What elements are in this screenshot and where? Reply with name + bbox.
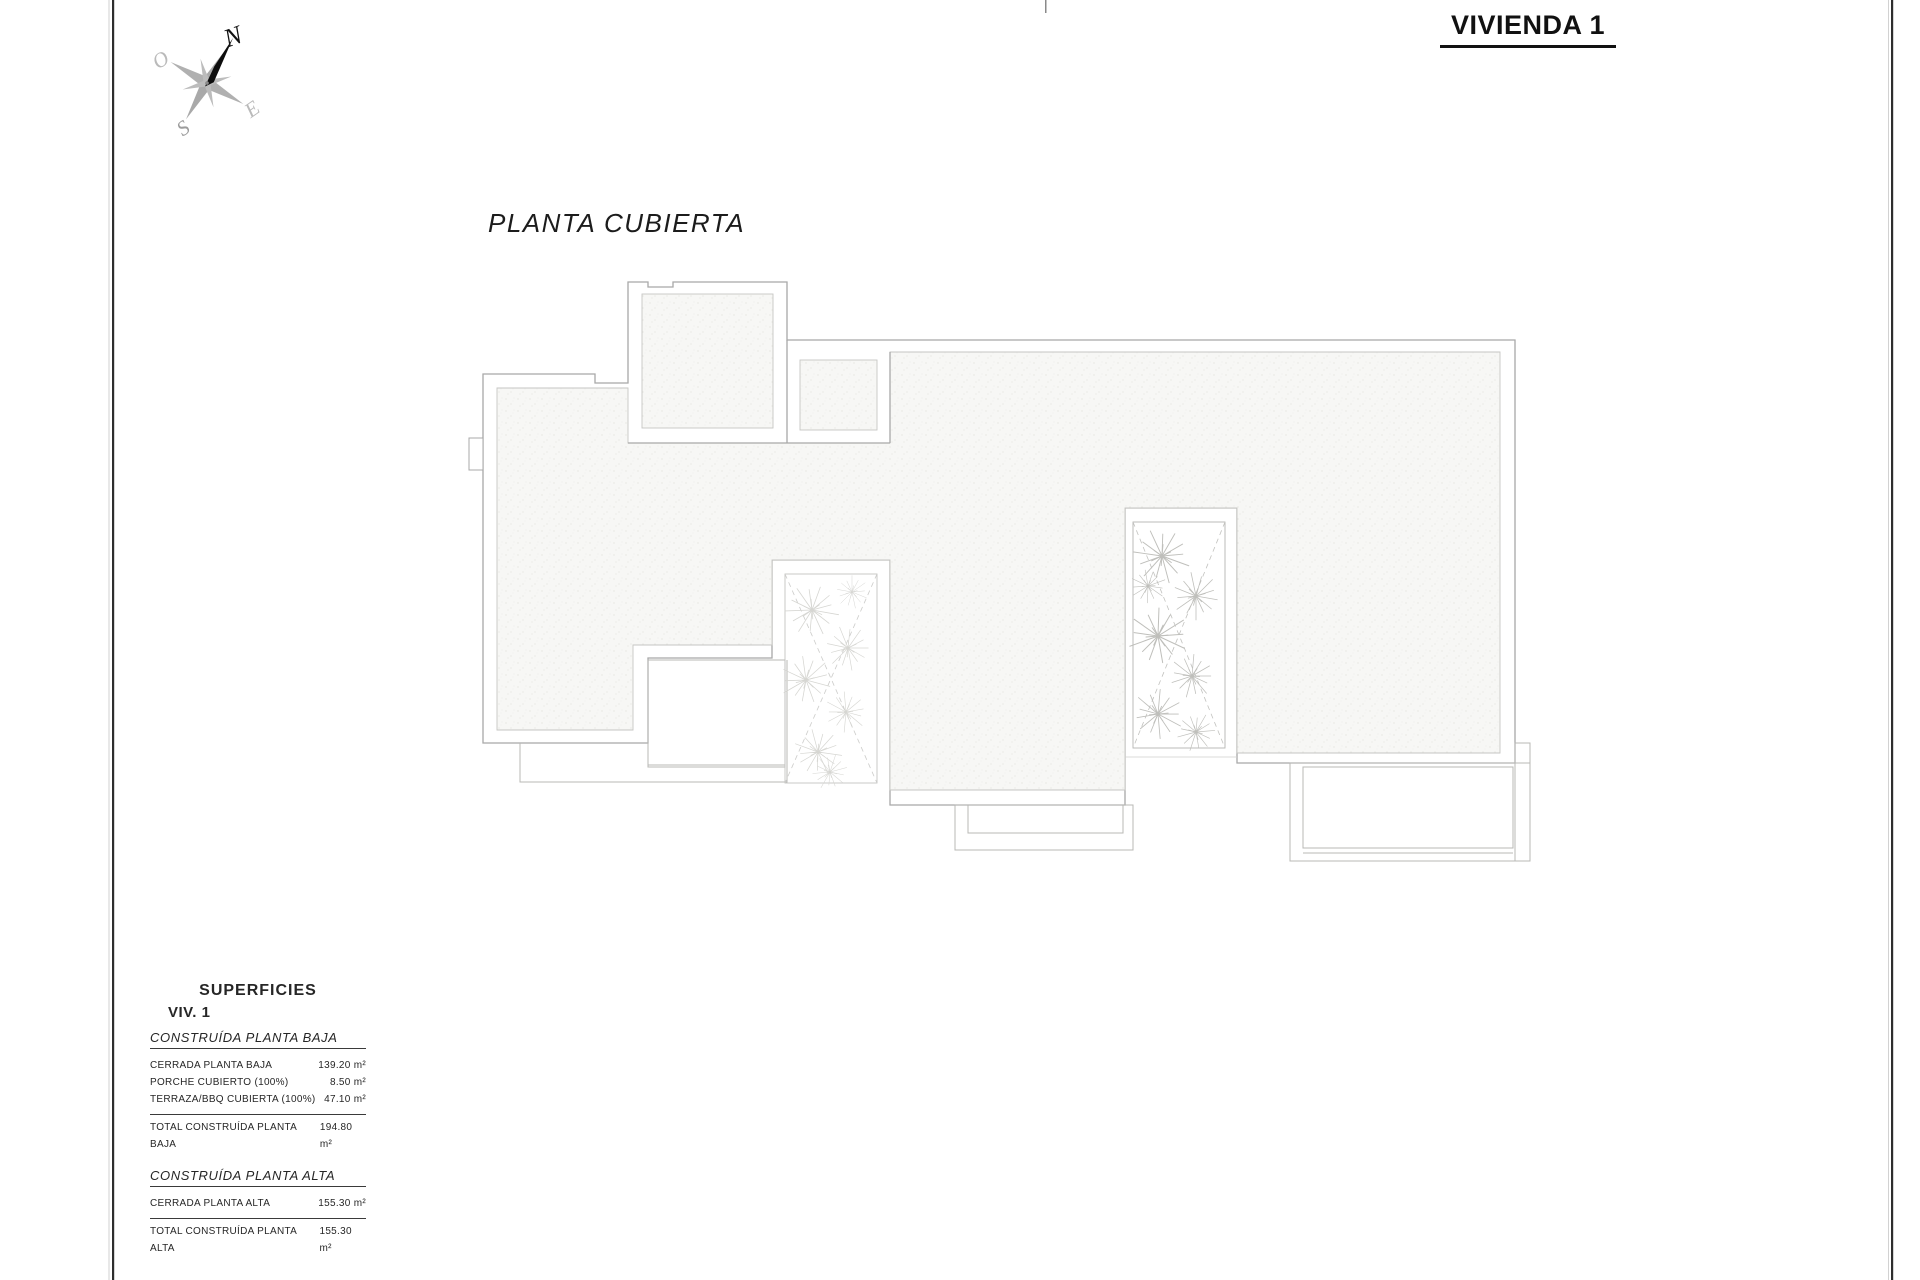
border-line-left-light (109, 0, 110, 1280)
slope-dashed-lines (785, 574, 877, 783)
compass-rose: N O E S (147, 17, 269, 141)
table-total-row: TOTAL CONSTRUÍDA PLANTA BAJA 194.80 m² (150, 1119, 366, 1153)
compass-north-label: N (219, 19, 248, 53)
palm-plants-left (773, 576, 874, 796)
palm-plant (807, 749, 852, 796)
palm-plant (1163, 646, 1222, 705)
rule (150, 1048, 366, 1049)
superficies-table: SUPERFICIES VIV. 1 CONSTRUÍDA PLANTA BAJ… (150, 982, 366, 1280)
row-label: CERRADA PLANTA ALTA (150, 1195, 270, 1212)
table-row: CERRADA PLANTA BAJA 139.20 m² (150, 1057, 366, 1074)
row-label: TOTAL CONSTRUÍDA PLANTA ALTA (150, 1223, 319, 1257)
row-value: 194.80 m² (320, 1119, 366, 1153)
row-label: PORCHE CUBIERTO (100%) (150, 1074, 289, 1091)
table-total-row: TOTAL CONSTRUÍDA PLANTA ALTA 155.30 m² (150, 1223, 366, 1257)
palm-plant (1127, 523, 1197, 589)
border-line-right-light (1888, 0, 1889, 1280)
row-label: CERRADA PLANTA BAJA (150, 1057, 272, 1074)
plan-title: PLANTA CUBIERTA (488, 208, 745, 239)
porch-outline-center (955, 805, 1133, 850)
palm-plant (837, 576, 866, 609)
superficies-subheading: VIV. 1 (168, 1004, 366, 1021)
row-value: 8.50 m² (330, 1074, 366, 1091)
row-label: TERRAZA/BBQ CUBIERTA (100%) (150, 1091, 316, 1108)
section-title-planta-alta: CONSTRUÍDA PLANTA ALTA (150, 1168, 366, 1183)
table-row: TERRAZA/BBQ CUBIERTA (100%) 47.10 m² (150, 1091, 366, 1108)
compass-south-label: S (172, 115, 195, 141)
palm-plant (1172, 706, 1221, 756)
palm-plants-right (1121, 523, 1222, 757)
compass-star (150, 17, 270, 140)
tower-roof-panel (642, 294, 773, 428)
palm-plant (819, 685, 874, 740)
rule (150, 1186, 366, 1187)
border-line-left-dark (112, 0, 114, 1280)
rule (150, 1114, 366, 1115)
palm-plant (788, 724, 847, 780)
rule (150, 1218, 366, 1219)
palm-plant (825, 623, 872, 674)
section-title-planta-baja: CONSTRUÍDA PLANTA BAJA (150, 1030, 366, 1045)
row-value: 155.30 m² (319, 1223, 366, 1257)
compass-east-label: E (239, 95, 264, 123)
palm-plant (1175, 573, 1217, 620)
compass-west-label: O (147, 46, 173, 74)
left-edge-notch (469, 438, 483, 470)
table-row: CERRADA PLANTA ALTA 155.30 m² (150, 1195, 366, 1212)
row-value: 47.10 m² (324, 1091, 366, 1108)
plant-bed-right (1121, 522, 1225, 757)
roof-plan (469, 282, 1530, 861)
palm-plant (1121, 602, 1195, 672)
small-roof-panel (800, 360, 877, 430)
plant-bed-left (773, 574, 877, 796)
drawing-sheet: N O E S VIVIENDA 1 PLANTA CUBIERTA SUPER… (0, 0, 1920, 1280)
table-row: PORCHE CUBIERTO (100%) 8.50 m² (150, 1074, 366, 1091)
row-label: TOTAL CONSTRUÍDA PLANTA BAJA (150, 1119, 320, 1153)
palm-plant (1124, 681, 1191, 748)
palm-plant (782, 582, 843, 638)
superficies-heading: SUPERFICIES (150, 982, 366, 1000)
row-value: 139.20 m² (318, 1057, 366, 1074)
row-value: 155.30 m² (318, 1195, 366, 1212)
border-line-right-dark (1891, 0, 1893, 1280)
title-block-tick (1045, 0, 1047, 13)
drawing-title: VIVIENDA 1 (1440, 10, 1616, 48)
